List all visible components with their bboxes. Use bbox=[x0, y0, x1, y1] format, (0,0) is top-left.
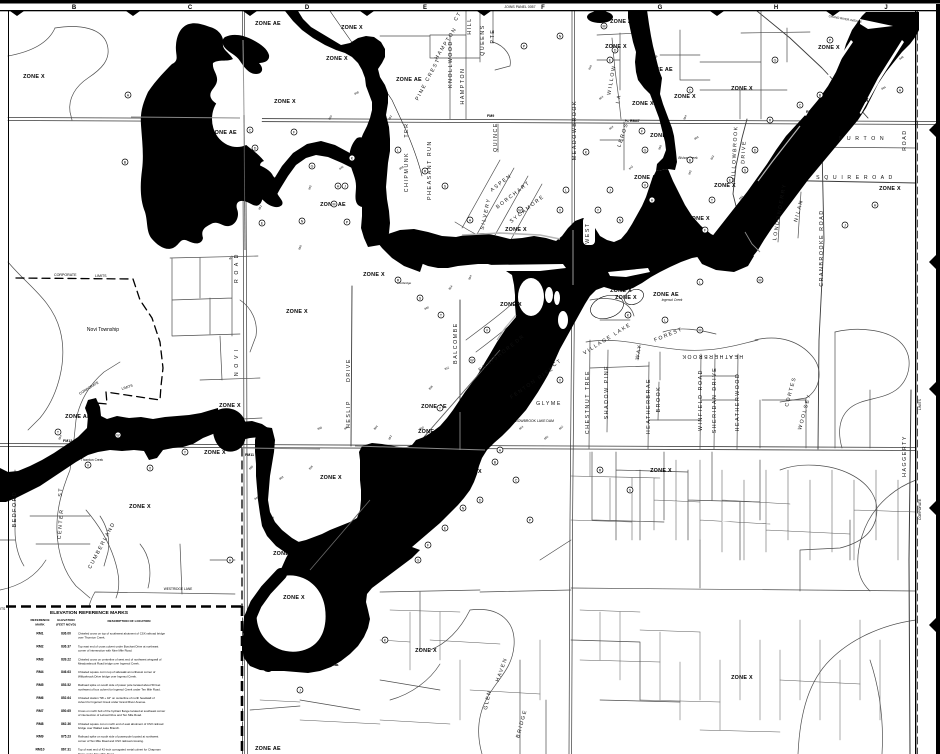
svg-text:J: J bbox=[844, 224, 846, 228]
svg-text:QUEENS: QUEENS bbox=[480, 24, 486, 56]
svg-text:R: R bbox=[769, 119, 772, 123]
svg-text:ZONE X: ZONE X bbox=[363, 272, 385, 278]
svg-text:MEADOWBROOK LAKE DAM: MEADOWBROOK LAKE DAM bbox=[508, 419, 554, 423]
svg-text:ZONE X: ZONE X bbox=[283, 595, 305, 601]
svg-text:ZONE AE: ZONE AE bbox=[610, 19, 636, 25]
svg-text:RM5: RM5 bbox=[36, 683, 43, 687]
svg-text:ZONE X: ZONE X bbox=[818, 45, 840, 51]
svg-text:Willowbrook Drive bridge over: Willowbrook Drive bridge over Ingersol C… bbox=[78, 674, 137, 678]
svg-text:RM2: RM2 bbox=[36, 644, 43, 648]
svg-text:RM8: RM8 bbox=[36, 722, 43, 726]
svg-text:LIMITS: LIMITS bbox=[95, 274, 107, 278]
svg-text:corner of intersection with Ni: corner of intersection with Nine Mile Ro… bbox=[78, 649, 133, 653]
svg-text:B U R T O N: B U R T O N bbox=[839, 136, 886, 142]
svg-text:D: D bbox=[305, 5, 310, 11]
svg-text:D: D bbox=[614, 49, 617, 53]
svg-text:bridge over Walled Lake Branch: bridge over Walled Lake Branch. bbox=[78, 726, 120, 730]
svg-text:G: G bbox=[311, 165, 314, 169]
svg-text:HESLIP: HESLIP bbox=[346, 400, 352, 428]
svg-text:corner of Ten Mile Road and CS: corner of Ten Mile Road and CSX railroad… bbox=[78, 739, 144, 743]
svg-text:TER: TER bbox=[404, 122, 410, 137]
svg-text:QUINCE: QUINCE bbox=[493, 122, 499, 152]
svg-text:R: R bbox=[599, 469, 602, 473]
svg-text:B: B bbox=[72, 5, 77, 11]
svg-text:862.36: 862.36 bbox=[61, 722, 71, 726]
svg-text:ZONE X: ZONE X bbox=[341, 25, 363, 31]
svg-text:N: N bbox=[559, 35, 562, 39]
svg-text:CRANBROOKE ROAD: CRANBROOKE ROAD bbox=[819, 209, 825, 286]
svg-text:L: L bbox=[699, 281, 701, 285]
svg-text:DRIVE: DRIVE bbox=[740, 140, 747, 164]
svg-text:ZONE X: ZONE X bbox=[219, 403, 241, 409]
svg-text:ZONE X: ZONE X bbox=[129, 504, 151, 510]
svg-text:PTE: PTE bbox=[490, 29, 496, 44]
svg-text:J: J bbox=[609, 189, 611, 193]
svg-text:ZONE AE: ZONE AE bbox=[647, 67, 673, 73]
svg-text:ZONE X: ZONE X bbox=[320, 475, 342, 481]
svg-text:ZONE AE: ZONE AE bbox=[65, 414, 91, 420]
svg-text:Novi Township: Novi Township bbox=[87, 327, 119, 333]
svg-text:FM9: FM9 bbox=[487, 114, 494, 118]
svg-text:ZONE X: ZONE X bbox=[731, 86, 753, 92]
svg-text:852.64: 852.64 bbox=[61, 696, 71, 700]
svg-text:H: H bbox=[229, 559, 232, 563]
svg-text:ZONE X: ZONE X bbox=[688, 216, 710, 222]
svg-text:ELEVATION REFERENCE MARKS: ELEVATION REFERENCE MARKS bbox=[50, 610, 129, 616]
svg-text:G: G bbox=[774, 59, 777, 63]
svg-text:ZONE X: ZONE X bbox=[274, 99, 296, 105]
svg-text:RM5: RM5 bbox=[806, 110, 814, 114]
svg-text:W: W bbox=[470, 359, 474, 363]
svg-text:ZONE X: ZONE X bbox=[847, 98, 869, 104]
svg-text:ST: ST bbox=[58, 487, 65, 497]
svg-text:DRIVE: DRIVE bbox=[346, 358, 352, 382]
svg-text:KNOLLWOOD: KNOLLWOOD bbox=[448, 40, 454, 88]
svg-text:ZONE X: ZONE X bbox=[204, 450, 226, 456]
svg-text:RM3: RM3 bbox=[36, 657, 43, 661]
svg-text:RM6: RM6 bbox=[36, 696, 43, 700]
svg-text:J: J bbox=[299, 689, 301, 693]
svg-text:ZONE X: ZONE X bbox=[460, 469, 482, 475]
svg-text:LIMITS: LIMITS bbox=[918, 398, 922, 410]
svg-text:RM47: RM47 bbox=[630, 119, 640, 123]
svg-text:ZONE X: ZONE X bbox=[731, 675, 753, 681]
svg-text:C: C bbox=[515, 479, 518, 483]
svg-text:CORPORATE: CORPORATE bbox=[918, 498, 922, 520]
svg-text:Meadowbrook Road bridge over I: Meadowbrook Road bridge over Ingersol Cr… bbox=[78, 662, 140, 666]
svg-text:F: F bbox=[541, 5, 545, 11]
svg-text:of intersection of Lebost Driv: of intersection of Lebost Drive and Ten … bbox=[78, 713, 142, 717]
svg-text:H: H bbox=[874, 204, 877, 208]
svg-text:850.65: 850.65 bbox=[61, 709, 71, 713]
svg-text:N: N bbox=[301, 220, 304, 224]
svg-text:ZONE X: ZONE X bbox=[500, 302, 522, 308]
svg-text:ZONE AE: ZONE AE bbox=[255, 21, 281, 27]
svg-text:CHIPMUNK: CHIPMUNK bbox=[404, 152, 410, 192]
svg-text:836.00: 836.00 bbox=[61, 632, 71, 636]
svg-text:FM12: FM12 bbox=[63, 439, 72, 443]
svg-text:D: D bbox=[479, 499, 482, 503]
svg-text:ZONE X: ZONE X bbox=[714, 183, 736, 189]
svg-text:D: D bbox=[754, 149, 757, 153]
svg-text:D: D bbox=[254, 147, 257, 151]
svg-text:R: R bbox=[424, 170, 427, 174]
svg-text:S Q U I R E R O A D: S Q U I R E R O A D bbox=[816, 175, 894, 181]
svg-text:RM1: RM1 bbox=[36, 632, 43, 636]
svg-text:ITS: ITS bbox=[0, 607, 6, 611]
svg-text:H: H bbox=[774, 5, 778, 11]
svg-text:JOINS PANEL 0057: JOINS PANEL 0057 bbox=[504, 5, 535, 9]
svg-text:867.31: 867.31 bbox=[61, 748, 71, 752]
svg-text:RM4: RM4 bbox=[494, 431, 502, 435]
svg-text:836.37: 836.37 bbox=[61, 644, 71, 648]
svg-text:ZONE X: ZONE X bbox=[610, 288, 632, 294]
svg-text:839.22: 839.22 bbox=[61, 657, 71, 661]
svg-text:L: L bbox=[397, 149, 399, 153]
svg-text:C: C bbox=[689, 89, 692, 93]
svg-text:M: M bbox=[603, 25, 606, 29]
svg-text:ZONE X: ZONE X bbox=[286, 309, 308, 315]
svg-text:C: C bbox=[799, 104, 802, 108]
svg-text:L: L bbox=[664, 319, 666, 323]
svg-text:BEDFORD: BEDFORD bbox=[12, 491, 18, 528]
svg-text:CHESTNUT TREE: CHESTNUT TREE bbox=[585, 370, 591, 434]
svg-text:H: H bbox=[651, 199, 654, 203]
svg-text:G: G bbox=[644, 149, 647, 153]
svg-text:CORPORATE: CORPORATE bbox=[54, 273, 77, 277]
svg-text:culvert for Ingersol Creek und: culvert for Ingersol Creek under Grand R… bbox=[78, 700, 146, 704]
svg-text:M: M bbox=[333, 203, 336, 207]
svg-text:RM7: RM7 bbox=[36, 709, 43, 713]
svg-text:SHERIDAN DRIVE: SHERIDAN DRIVE bbox=[712, 367, 718, 434]
svg-text:over Thornton Creek.: over Thornton Creek. bbox=[78, 636, 105, 640]
svg-text:R O A D: R O A D bbox=[234, 253, 240, 283]
svg-text:Thornton Creek: Thornton Creek bbox=[81, 458, 104, 462]
svg-text:ZONE X: ZONE X bbox=[650, 133, 672, 139]
svg-text:ZONE X: ZONE X bbox=[674, 94, 696, 100]
svg-text:HEATHERWOOD: HEATHERWOOD bbox=[735, 373, 741, 432]
svg-text:ZONE AE: ZONE AE bbox=[273, 551, 299, 557]
svg-text:ZONE X: ZONE X bbox=[632, 101, 654, 107]
svg-text:ZONE X: ZONE X bbox=[650, 468, 672, 474]
svg-text:C: C bbox=[188, 5, 193, 11]
svg-text:HEATHERBRAE: HEATHERBRAE bbox=[646, 378, 652, 434]
svg-text:(FEET NGVD): (FEET NGVD) bbox=[56, 623, 76, 627]
svg-text:ZONE X: ZONE X bbox=[505, 227, 527, 233]
svg-text:WESTRIDGE LANE: WESTRIDGE LANE bbox=[164, 587, 193, 591]
svg-text:REFERENCE: REFERENCE bbox=[30, 618, 49, 622]
svg-text:DESCRIPTION OF LOCATION: DESCRIPTION OF LOCATION bbox=[107, 619, 151, 623]
svg-text:BALCOMBE: BALCOMBE bbox=[453, 322, 459, 364]
svg-text:ROAD: ROAD bbox=[902, 129, 908, 150]
svg-text:G: G bbox=[417, 559, 420, 563]
svg-text:ZONE X: ZONE X bbox=[415, 648, 437, 654]
svg-text:853.52: 853.52 bbox=[61, 683, 71, 687]
svg-text:875.23: 875.23 bbox=[61, 735, 71, 739]
svg-text:G: G bbox=[658, 5, 663, 11]
svg-text:J: J bbox=[344, 185, 346, 189]
svg-text:FM11: FM11 bbox=[245, 453, 254, 457]
svg-text:WINFIELD ROAD: WINFIELD ROAD bbox=[698, 369, 704, 431]
svg-text:MARK: MARK bbox=[35, 623, 45, 627]
svg-text:R: R bbox=[397, 279, 400, 283]
svg-text:N: N bbox=[619, 219, 622, 223]
svg-text:HILL: HILL bbox=[467, 17, 473, 34]
svg-text:northwest of box culvert for I: northwest of box culvert for Ingersol Cr… bbox=[78, 687, 161, 691]
svg-text:Ingersol Creek: Ingersol Creek bbox=[662, 298, 683, 302]
svg-text:HEATHERBROOK: HEATHERBROOK bbox=[681, 353, 743, 359]
svg-text:846.63: 846.63 bbox=[61, 670, 71, 674]
svg-text:ZONE AE: ZONE AE bbox=[396, 77, 422, 83]
svg-text:L: L bbox=[565, 189, 567, 193]
svg-text:H: H bbox=[337, 185, 340, 189]
svg-text:ZONE X: ZONE X bbox=[326, 56, 348, 62]
svg-text:E: E bbox=[423, 5, 427, 11]
svg-text:RM9: RM9 bbox=[36, 735, 43, 739]
svg-text:WEST: WEST bbox=[585, 222, 591, 243]
svg-text:SHADOW PINE: SHADOW PINE bbox=[604, 365, 610, 420]
svg-text:N O V I: N O V I bbox=[234, 348, 240, 376]
svg-text:ZONE AE: ZONE AE bbox=[255, 746, 281, 752]
svg-text:ZONE AE: ZONE AE bbox=[313, 662, 339, 668]
svg-text:ZONE AE: ZONE AE bbox=[634, 175, 660, 181]
svg-text:BROOK: BROOK bbox=[656, 386, 662, 413]
svg-text:RM10: RM10 bbox=[35, 748, 44, 752]
svg-text:W: W bbox=[518, 209, 522, 213]
svg-text:ZONE X: ZONE X bbox=[879, 186, 901, 192]
svg-text:MEADOWBROOK: MEADOWBROOK bbox=[572, 100, 578, 160]
svg-text:ZONE X: ZONE X bbox=[23, 74, 45, 80]
svg-text:HAMPTON: HAMPTON bbox=[460, 67, 466, 104]
svg-text:GLYME: GLYME bbox=[536, 401, 562, 407]
svg-text:RM44: RM44 bbox=[546, 240, 556, 244]
svg-text:HAGGERTY: HAGGERTY bbox=[902, 435, 908, 477]
svg-text:N: N bbox=[462, 507, 465, 511]
svg-text:ELEVATION: ELEVATION bbox=[57, 618, 75, 622]
svg-text:C: C bbox=[249, 129, 252, 133]
svg-text:W: W bbox=[116, 434, 120, 438]
svg-text:RM4: RM4 bbox=[36, 670, 43, 674]
svg-text:ZONE X: ZONE X bbox=[433, 247, 455, 253]
svg-text:ZONE AE: ZONE AE bbox=[211, 130, 237, 136]
svg-text:M: M bbox=[759, 279, 762, 283]
svg-text:M: M bbox=[699, 329, 702, 333]
svg-text:J: J bbox=[884, 5, 887, 11]
svg-text:ZONE X: ZONE X bbox=[615, 295, 637, 301]
